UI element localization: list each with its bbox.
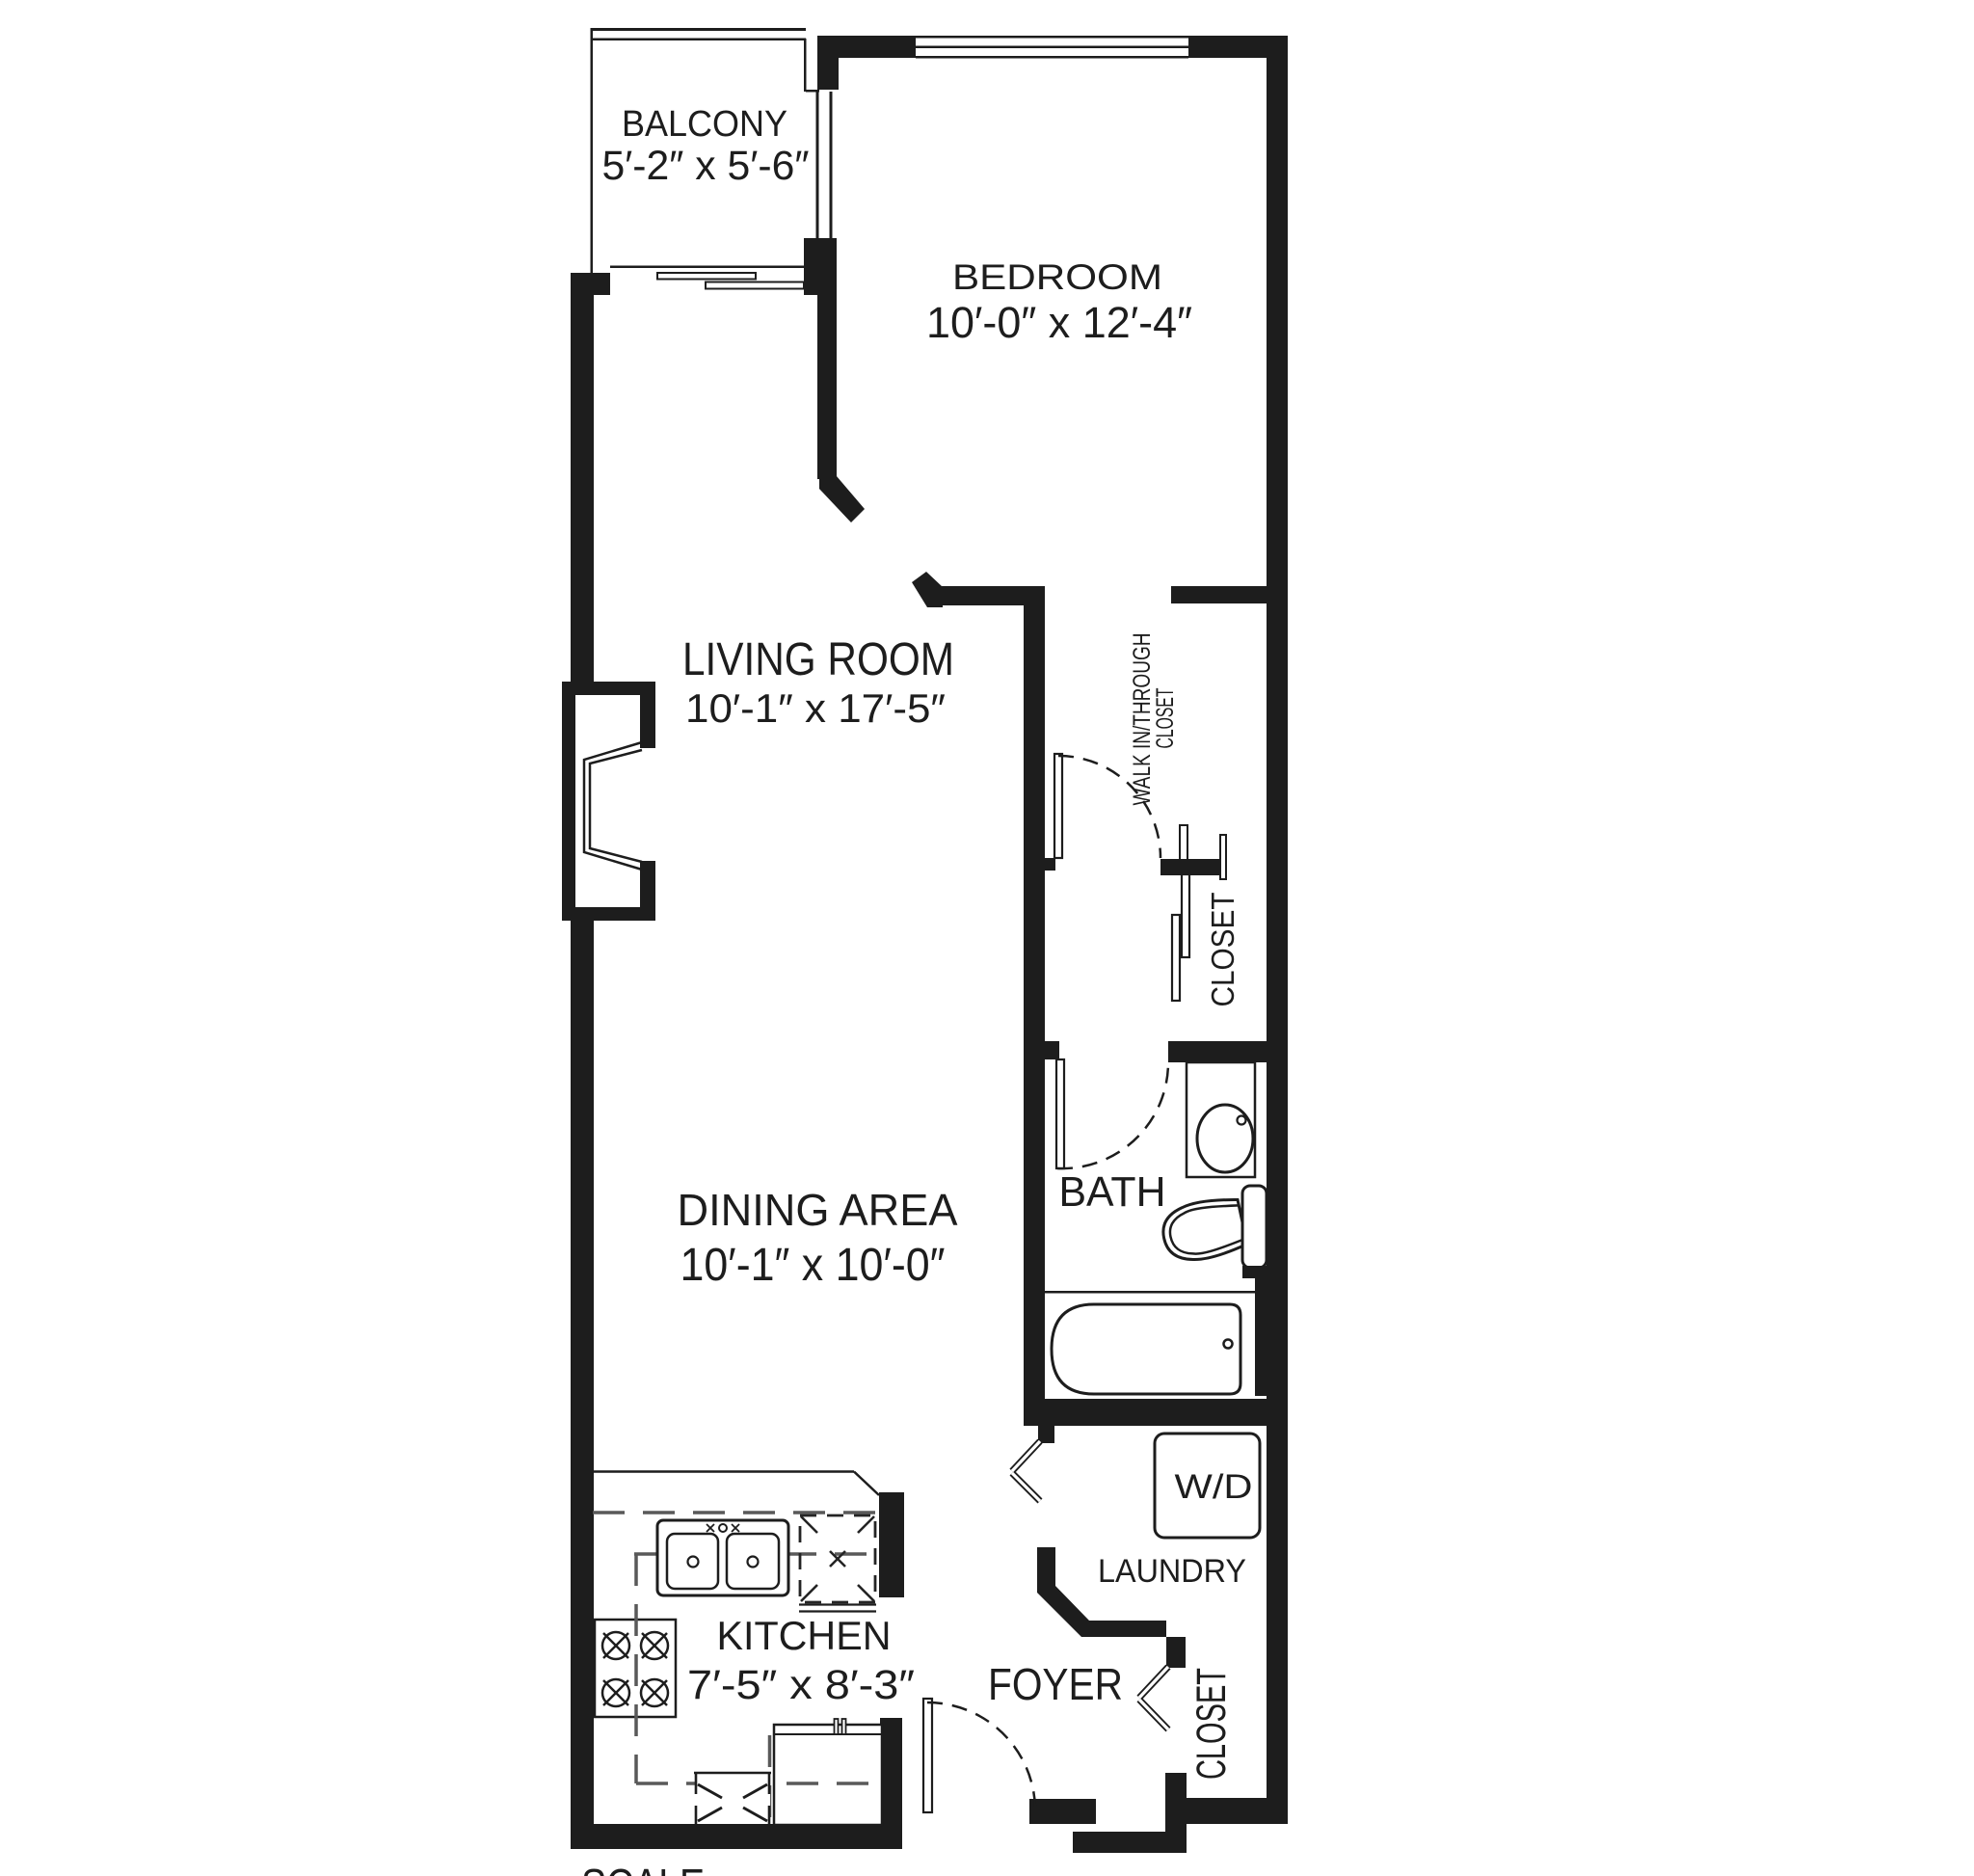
svg-text:LIVING ROOM: LIVING ROOM <box>682 634 954 685</box>
svg-text:10′-1″ x 10′-0″: 10′-1″ x 10′-0″ <box>680 1240 946 1291</box>
svg-text:5′-2″ x 5′-6″: 5′-2″ x 5′-6″ <box>602 143 810 189</box>
svg-text:DINING AREA: DINING AREA <box>678 1185 958 1235</box>
svg-text:CLOSET: CLOSET <box>1205 893 1240 1007</box>
svg-text:BEDROOM: BEDROOM <box>952 257 1162 297</box>
svg-text:W/D: W/D <box>1175 1468 1253 1506</box>
svg-text:7′-5″ x 8′-3″: 7′-5″ x 8′-3″ <box>687 1662 915 1708</box>
svg-text:10′-0″ x 12′-4″: 10′-0″ x 12′-4″ <box>926 298 1192 347</box>
svg-text:CLOSET: CLOSET <box>1152 688 1179 749</box>
svg-text:BATH: BATH <box>1059 1168 1166 1216</box>
svg-text:10′-1″ x 17′-5″: 10′-1″ x 17′-5″ <box>685 685 946 731</box>
svg-text:CLOSET: CLOSET <box>1188 1668 1235 1780</box>
svg-text:BALCONY: BALCONY <box>622 104 787 145</box>
svg-text:KITCHEN: KITCHEN <box>717 1613 892 1658</box>
svg-text:SCALE: SCALE <box>581 1860 705 1876</box>
svg-text:FOYER: FOYER <box>988 1659 1123 1709</box>
svg-text:LAUNDRY: LAUNDRY <box>1098 1553 1246 1590</box>
